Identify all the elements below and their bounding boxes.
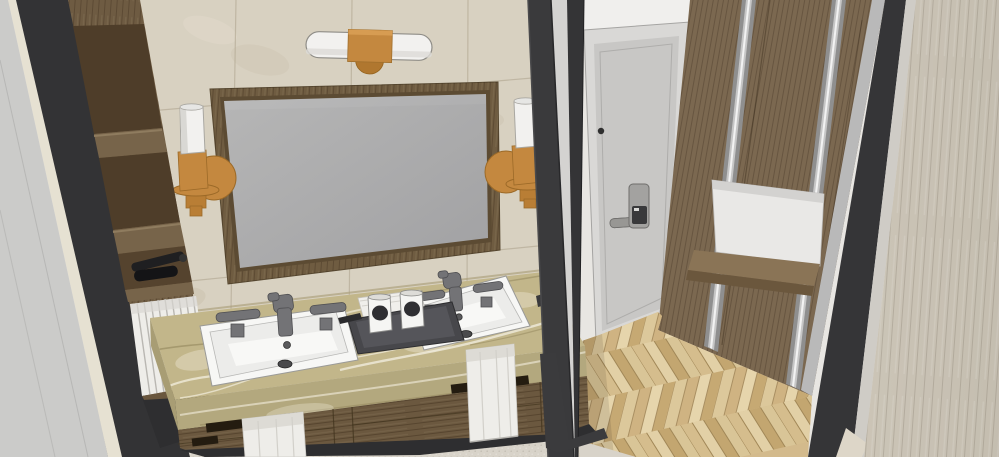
hanging-towel-left [242, 412, 306, 457]
mirror-glass [224, 94, 488, 268]
peephole [598, 128, 604, 134]
bathroom-render [0, 0, 999, 457]
drain [278, 360, 292, 368]
hanging-towel-right [466, 344, 518, 442]
mirror [210, 82, 500, 284]
overflow-hole [284, 342, 291, 349]
